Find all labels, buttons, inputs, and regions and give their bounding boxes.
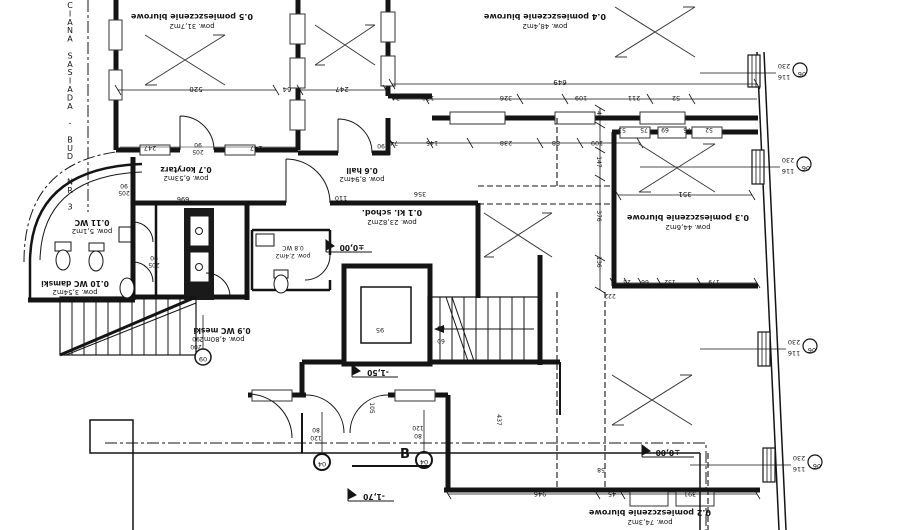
dim: 326 [500,94,512,102]
door-size: 120 [310,434,322,441]
door-size: 80 [414,432,422,439]
dim: 247 [250,144,262,152]
dim: 75 [683,126,691,133]
room-08-name: 0.8 WC [282,244,304,251]
dim: 69 [661,126,669,133]
dim: 356 [414,190,426,198]
dim: 52 [705,126,713,133]
dim: 88 [552,139,560,147]
door-size: 90 [120,182,128,189]
dim: 34 [392,94,400,102]
washbasin [256,234,274,246]
door-size: 90 [192,335,200,342]
window-06 [700,332,786,366]
wc-partition-dark [184,208,214,300]
dim: 238 [500,139,512,147]
dim: 247 [335,85,348,93]
stairs-left-flight [60,297,196,355]
room-07-area: pow. 6,53m2 [163,174,208,182]
room-06-name: 0.6 hall [346,166,377,175]
room-04-area: pow. 48,4m2 [522,22,567,30]
window-tag: 06 [808,346,816,354]
floorplan-page: { "drawing": { "type": "architectural-fl… [0,0,900,530]
dim: 60 [437,337,445,344]
room-03-name: 0.3 pomieszczenie biurowe [626,213,749,222]
door-size: 205 [118,189,130,196]
dim: 23 [623,278,631,285]
room-05-name: 0.5 pomieszczenie biurowe [130,12,253,21]
window-width: 116 [778,73,790,81]
floor-plan-drawing: B CIANA SASIADA - BUD. NR 3 0.5 pomieszc… [0,0,900,530]
room-09-name: 0.9 WC meski [193,326,250,335]
toilet-tank [89,243,104,251]
door-size: 80 [312,426,320,433]
room-07-name: 0.7 korytarz [160,165,211,174]
dim: 64 [282,85,291,93]
elevator-shaft [344,266,430,364]
window-tag: 06 [802,164,810,172]
dim: 60 [437,324,445,331]
dim: 520 [189,85,202,93]
neighbor-wall-text: CIANA SASIADA - BUD. NR 3 [67,1,73,212]
level-zero: ±0,00 [340,243,365,252]
room-011-name: 0.11 WC [74,218,109,227]
door-tag: 04 [318,460,326,468]
room-04-name: 0.4 pomieszczenie biurowe [483,12,606,21]
room-010-area: pow. 3,54m2 [52,288,97,296]
window-width: 116 [782,167,794,175]
room-05-area: pow. 31,7m2 [169,22,214,30]
room-02-area: pow. 74,3m2 [627,518,672,526]
dim: 351 [678,190,691,198]
toilet-bowl [274,275,288,293]
dim: 391 [684,490,696,498]
dim: 58 [597,466,605,473]
dim: 66 [641,278,649,285]
door-size: 90 [150,254,158,261]
level-minus170: -1,70 [363,492,385,501]
toilet-bowl [56,250,70,270]
window-width: 116 [788,349,800,357]
window-height: 230 [782,156,794,164]
level-minus150: -1,50 [367,368,389,377]
dim: 147 [595,156,602,168]
room-09-area: pow. 4,80m2 [199,335,244,343]
dim: 247 [144,144,156,152]
door-size: 205 [192,148,204,155]
dim: 130 [422,94,434,102]
dim: 44 [595,111,602,119]
dim: 110 [335,194,347,202]
room-03-area: pow. 44,6m2 [665,223,710,231]
window-tag: 06 [798,70,806,78]
dim: 45 [608,490,616,498]
dim: 95 [376,326,384,334]
dim: 145 [426,139,438,147]
dim: 74 [390,139,398,147]
dim: 649 [553,78,566,86]
window-tag: 06 [813,462,821,470]
window-height: 230 [793,454,805,462]
dim: 152 [664,278,676,285]
toilet-bowl [89,251,103,271]
door-size: 90 [377,142,385,149]
dim: 222 [604,292,616,299]
door-size: 90 [194,141,202,148]
dim: 53 [618,126,626,133]
door-tag: 09 [199,355,207,363]
room-06-area: pow. 8,94m2 [339,175,384,183]
room-01-area: pow. 23,82m2 [367,218,417,226]
dim: 376 [595,210,602,222]
door-size: 120 [412,424,424,431]
dim: 437 [495,414,502,426]
dim: 109 [575,94,587,102]
dim: 109 [591,139,603,147]
level-zero: ±0,00 [656,448,681,457]
dim: 211 [628,94,640,102]
door-size: 205 [148,261,160,268]
door-size: 205 [375,149,387,156]
tag-circles [195,63,822,470]
dim: 696 [177,195,189,203]
room-08-area: pow. 2,4m2 [275,252,310,259]
window-06 [640,150,780,184]
toilet-bowl [120,278,134,298]
dim: 136 [595,256,602,268]
room-01-name: 0.1 kl. schod. [362,208,422,217]
urinal [119,227,131,242]
dim: 105 [368,402,375,414]
room-010-name: 0.10 WC damski [41,279,109,288]
dim: 946 [534,490,546,498]
room-02-name: 0.2 pomieszczenie biurowe [588,508,711,517]
section-label: B [400,447,410,462]
window-height: 230 [788,338,800,346]
dim: 75 [640,126,648,133]
door-tag: 04 [420,458,428,466]
window-width: 116 [793,465,805,473]
room-011-area: pow. 5,1m2 [72,227,113,235]
dim: 52 [672,94,680,102]
window-height: 230 [778,62,790,70]
dim: 179 [708,278,720,285]
door-size: 200 [190,343,202,350]
